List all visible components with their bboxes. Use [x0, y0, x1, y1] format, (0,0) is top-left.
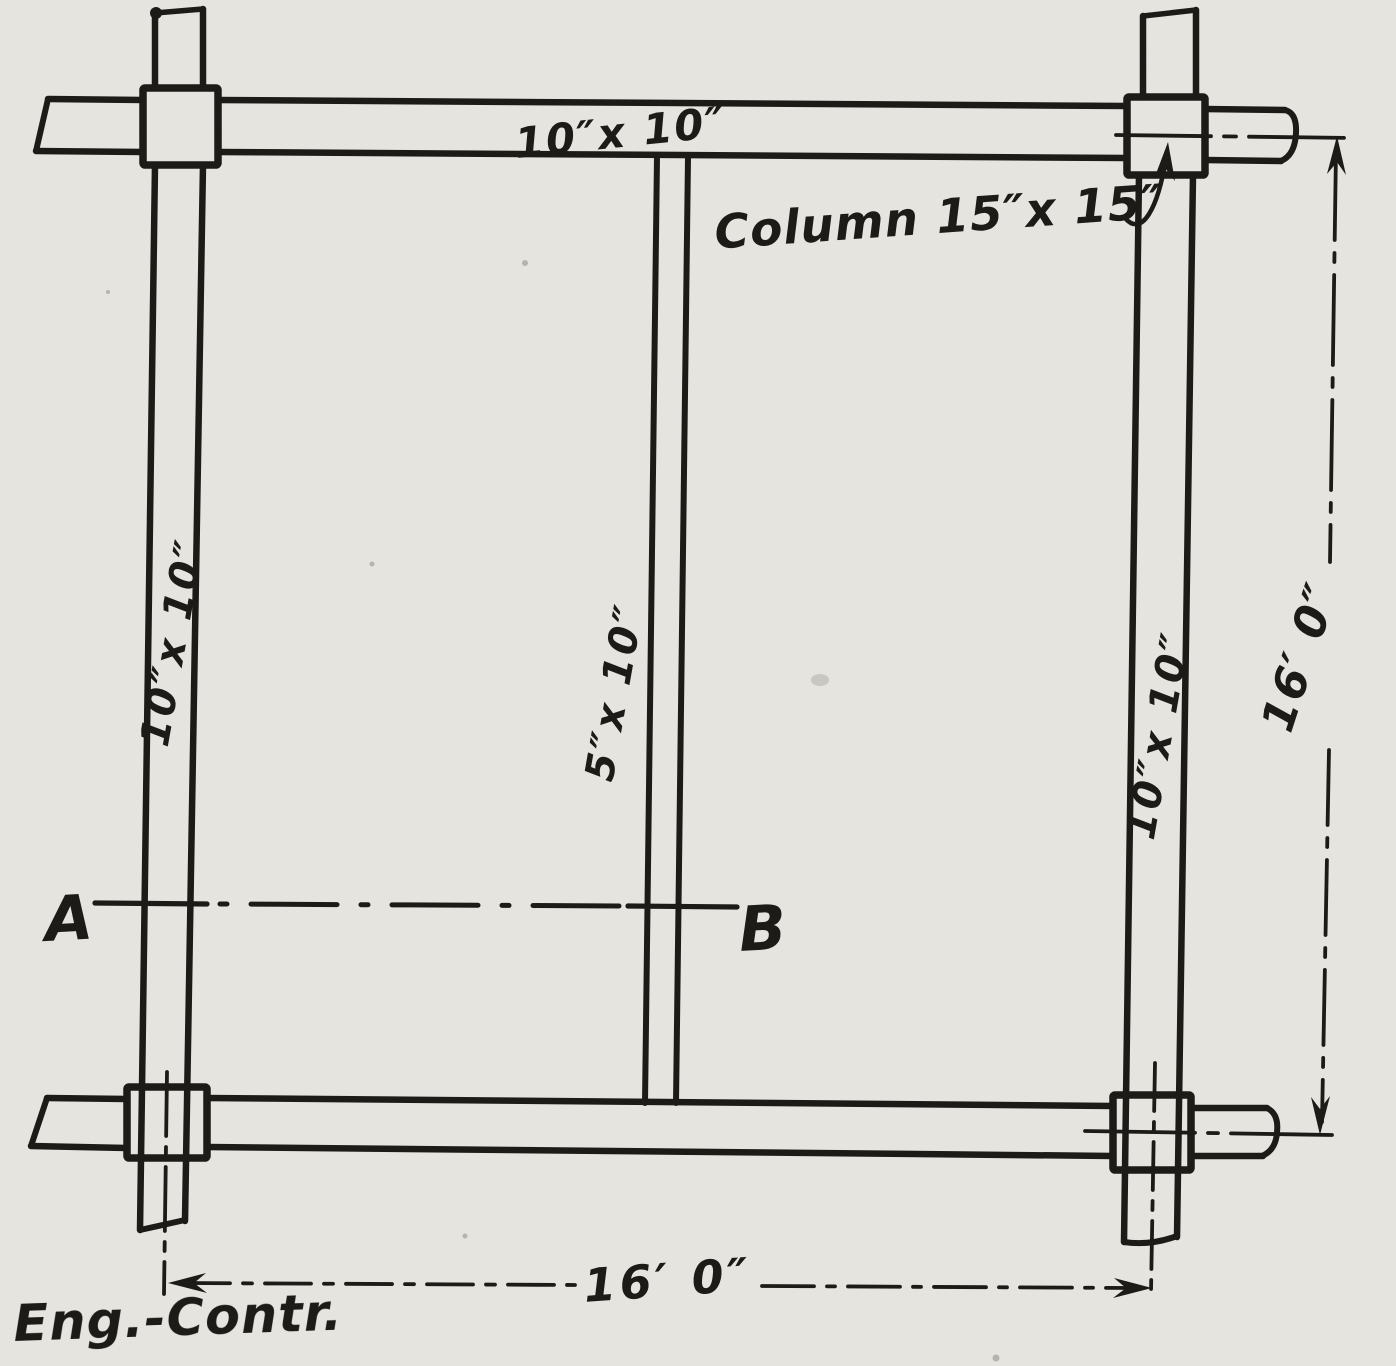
- paper-speckle: [993, 1355, 1000, 1362]
- bl-left-stub-top: [47, 1098, 127, 1099]
- section-line-left-solid: [95, 903, 207, 904]
- section-label-b: B: [737, 891, 788, 966]
- framing-plan-page: 16′ 0″ 16′ 0″ A B Column 15″x 15″ 10″x 1…: [0, 0, 1396, 1366]
- dim-bottom-line-left: [184, 1283, 575, 1285]
- tr-right-stub-top: [1205, 109, 1285, 110]
- framing-plan-drawing: 16′ 0″ 16′ 0″ A B Column 15″x 15″ 10″x 1…: [0, 0, 1396, 1366]
- paper-speckle: [106, 290, 110, 294]
- section-line-right-solid: [628, 906, 737, 907]
- credit-text: Eng.-Contr.: [12, 1284, 343, 1354]
- tl-up-stub-ink-dot: [150, 7, 162, 19]
- section-label-a: A: [38, 881, 95, 957]
- tl-left-stub-top: [48, 99, 143, 100]
- bl-left-stub-bottom: [31, 1146, 127, 1148]
- tr-right-stub-bottom: [1205, 160, 1281, 161]
- paper-speckle: [463, 1234, 468, 1239]
- paper-speckle: [370, 562, 375, 567]
- section-line-dashdot: [220, 904, 624, 906]
- paper-speckle: [811, 674, 829, 686]
- tl-left-stub-bottom: [36, 151, 143, 152]
- paper-speckle: [522, 260, 528, 266]
